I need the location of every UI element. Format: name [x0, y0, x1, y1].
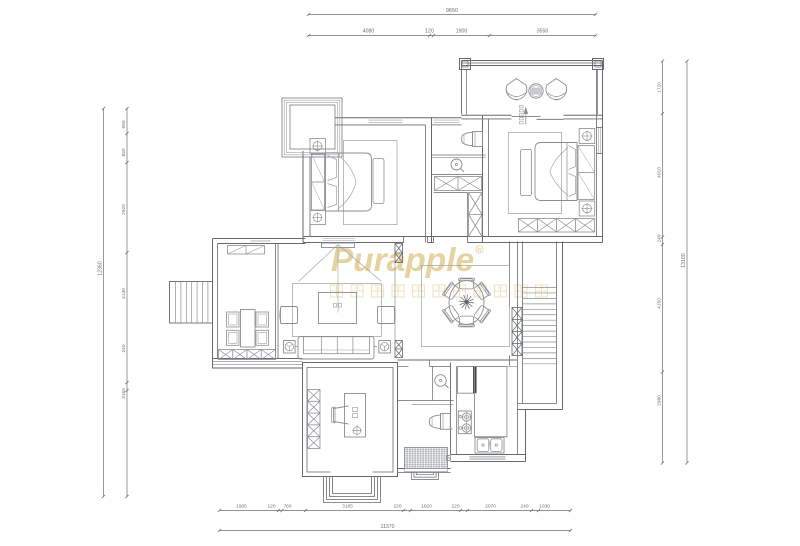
- svg-text:9650: 9650: [446, 8, 458, 14]
- svg-text:3550: 3550: [537, 29, 549, 35]
- svg-text:R: R: [478, 248, 482, 254]
- svg-text:220: 220: [451, 504, 459, 510]
- svg-text:1720: 1720: [657, 82, 663, 93]
- svg-text:13100: 13100: [681, 253, 687, 268]
- svg-text:2980: 2980: [657, 395, 663, 406]
- svg-text:120: 120: [425, 29, 434, 35]
- svg-text:4010: 4010: [657, 167, 663, 178]
- svg-text:2920: 2920: [121, 204, 127, 215]
- svg-text:4080: 4080: [363, 29, 375, 35]
- svg-text:240: 240: [121, 344, 127, 352]
- svg-text:1030: 1030: [539, 504, 550, 510]
- svg-text:830: 830: [121, 148, 127, 156]
- svg-text:220: 220: [393, 504, 401, 510]
- svg-text:12360: 12360: [98, 261, 104, 276]
- svg-text:4130: 4130: [121, 288, 127, 299]
- svg-text:11370: 11370: [380, 524, 394, 530]
- svg-text:2070: 2070: [485, 504, 496, 510]
- svg-text:1900: 1900: [456, 29, 468, 35]
- svg-text:4150: 4150: [657, 298, 663, 309]
- svg-text:3160: 3160: [121, 388, 127, 399]
- svg-text:650: 650: [121, 120, 127, 128]
- svg-text:1905: 1905: [236, 504, 247, 510]
- svg-text:240: 240: [657, 234, 663, 242]
- svg-text:240: 240: [520, 504, 528, 510]
- svg-text:1620: 1620: [421, 504, 432, 510]
- svg-text:3185: 3185: [342, 504, 353, 510]
- svg-text:760: 760: [283, 504, 291, 510]
- svg-text:120: 120: [267, 504, 275, 510]
